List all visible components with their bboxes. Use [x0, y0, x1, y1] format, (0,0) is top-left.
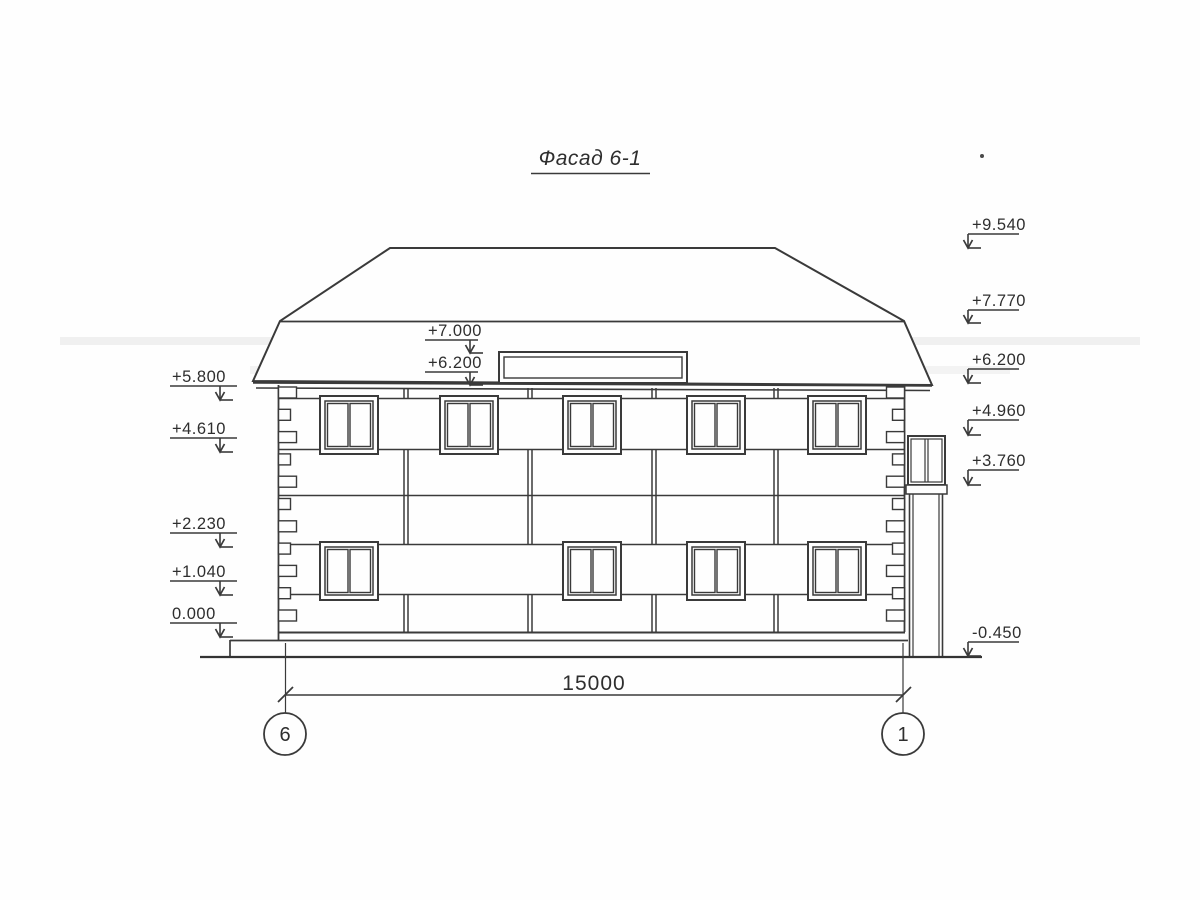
dimension-value: 15000: [562, 672, 625, 695]
window: [320, 542, 378, 600]
quoin-right: [887, 432, 905, 443]
quoin-right: [893, 499, 905, 510]
elevation-value: 0.000: [172, 605, 216, 623]
elevation-mark-left-3: +1.040: [170, 563, 237, 595]
elevation-value: +9.540: [972, 216, 1026, 234]
quoin-left: [279, 409, 291, 420]
window: [563, 396, 621, 454]
quoin-right: [887, 476, 905, 487]
elevation-value: +4.960: [972, 402, 1026, 420]
elevation-mark-left-1: +4.610: [170, 420, 237, 452]
right-shaft: [906, 436, 947, 656]
window-outer-frame: [808, 396, 866, 454]
quoin-right: [887, 387, 905, 398]
window: [808, 542, 866, 600]
elevation-value: +2.230: [172, 515, 226, 533]
plinth: [230, 640, 908, 656]
elevation-value: +6.200: [428, 354, 482, 372]
scanned-facade-sheet: Фасад 6-1: [0, 0, 1200, 900]
window-outer-frame: [563, 542, 621, 600]
quoin-left: [279, 454, 291, 465]
quoin-left: [279, 565, 297, 576]
elevation-mark-right-0: +9.540: [964, 216, 1026, 248]
window-outer-frame: [563, 396, 621, 454]
quoin-right: [893, 588, 905, 599]
elevation-value: +5.800: [172, 368, 226, 386]
quoin-right: [893, 543, 905, 554]
window-outer-frame: [808, 542, 866, 600]
elevation-value: +1.040: [172, 563, 226, 581]
window: [440, 396, 498, 454]
elevation-value: +7.000: [428, 322, 482, 340]
elevation-value: +4.610: [172, 420, 226, 438]
elevation-mark-right-2: +6.200: [964, 351, 1026, 383]
quoin-left: [279, 543, 291, 554]
elevation-mark-right-5: -0.450: [964, 624, 1022, 656]
elevation-value: +3.760: [972, 452, 1026, 470]
quoin-right: [893, 454, 905, 465]
scan-dot: [980, 154, 984, 158]
window: [687, 542, 745, 600]
elevation-mark-right-3: +4.960: [964, 402, 1026, 435]
window: [320, 396, 378, 454]
drawing-title: Фасад 6-1: [539, 147, 642, 170]
window-outer-frame: [320, 396, 378, 454]
window-outer-frame: [320, 542, 378, 600]
elevation-mark-left-4: 0.000: [170, 605, 237, 637]
elevation-mark-right-4: +3.760: [964, 452, 1026, 485]
elevation-value: -0.450: [972, 624, 1022, 642]
quoin-left: [279, 588, 291, 599]
quoin-left: [279, 387, 297, 398]
quoin-left: [279, 521, 297, 532]
window-outer-frame: [687, 396, 745, 454]
quoin-left: [279, 499, 291, 510]
quoin-left: [279, 432, 297, 443]
axis-number-right: 1: [897, 724, 908, 746]
quoin-right: [887, 610, 905, 621]
facade-drawing: Фасад 6-1: [0, 0, 1200, 900]
windows: [320, 396, 866, 600]
shaft-window-outer: [908, 436, 945, 485]
signboard: [499, 352, 687, 383]
elevation-value: +7.770: [972, 292, 1026, 310]
window: [808, 396, 866, 454]
quoin-left: [279, 476, 297, 487]
window: [563, 542, 621, 600]
quoin-left: [279, 610, 297, 621]
elevation-mark-left-2: +2.230: [170, 515, 237, 547]
window-outer-frame: [440, 396, 498, 454]
window: [687, 396, 745, 454]
quoin-right: [887, 565, 905, 576]
elevation-value: +6.200: [972, 351, 1026, 369]
shaft-sill: [906, 485, 947, 494]
quoin-right: [887, 521, 905, 532]
window-outer-frame: [687, 542, 745, 600]
elevation-mark-right-1: +7.770: [964, 292, 1026, 323]
elevation-mark-left-0: +5.800: [170, 368, 237, 400]
axis-number-left: 6: [279, 724, 290, 746]
dimension: 15000 6 1: [264, 643, 924, 755]
eave-edge-lower: [256, 388, 930, 391]
quoin-right: [893, 409, 905, 420]
